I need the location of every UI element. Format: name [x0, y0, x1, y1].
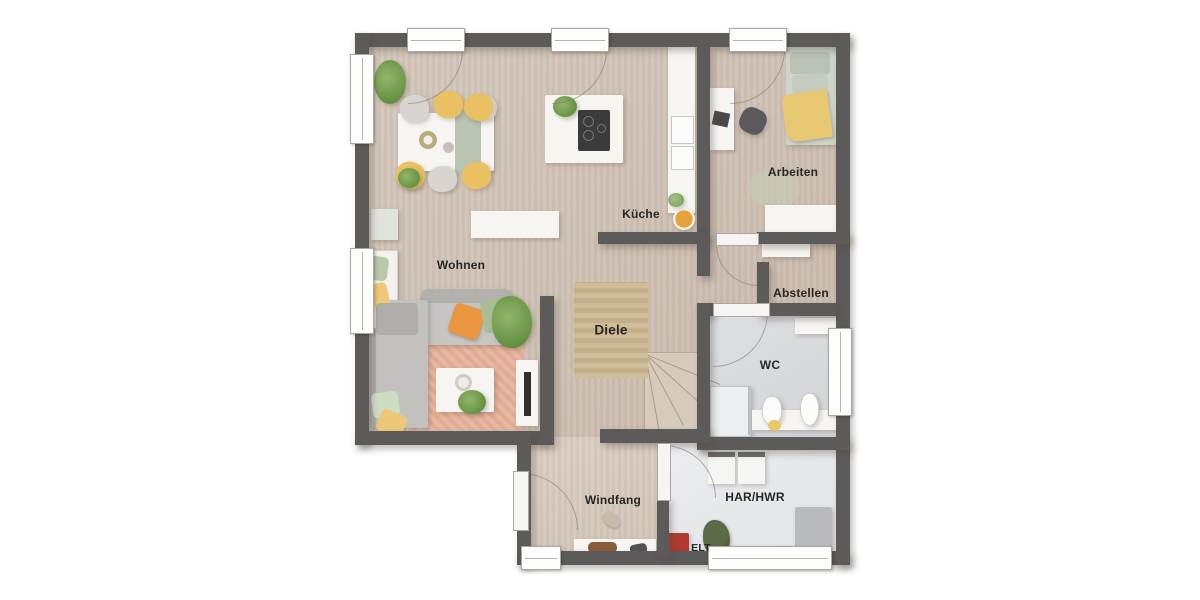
coffee-table-plant — [458, 390, 486, 414]
chaise-cushion — [376, 303, 418, 335]
tv — [524, 372, 531, 416]
toilet — [800, 393, 819, 426]
sofa-plant — [492, 296, 532, 348]
storage-door-leaf — [716, 233, 759, 246]
room-label-abstellen: Abstellen — [773, 286, 829, 300]
window-left-living — [350, 248, 374, 334]
window-top-office — [729, 28, 787, 52]
wall-wc-bottom — [697, 437, 850, 450]
wall-wc-left — [697, 303, 710, 450]
room-label-wohnen: Wohnen — [437, 258, 485, 272]
wall-wc-top-right — [768, 303, 836, 316]
table-wreath-decor — [419, 131, 437, 149]
wall-kitchen-office — [697, 47, 710, 232]
office-cabinet — [765, 205, 836, 232]
wall-stub-corridor — [697, 232, 710, 276]
built-in-oven — [671, 116, 694, 144]
window-top-living — [407, 28, 465, 52]
built-in-oven — [671, 146, 694, 170]
wc-door-leaf — [713, 303, 770, 317]
window-right-wc — [828, 328, 852, 416]
room-label-windfang: Windfang — [585, 493, 641, 507]
window-left-dining — [350, 54, 374, 144]
coffee-table-plate — [455, 374, 472, 391]
laptop — [712, 110, 731, 127]
cooktop-burner — [583, 116, 594, 127]
corner-plant — [374, 60, 406, 104]
room-label-har-hwr: HAR/HWR — [725, 490, 784, 504]
kitchen-greenery — [668, 193, 684, 207]
cooktop-burner — [597, 124, 606, 133]
chair-plant — [398, 168, 420, 188]
wall-kitchen-bottom — [598, 232, 710, 244]
window-bottom-windfang — [521, 546, 561, 570]
utility-unit — [795, 507, 832, 548]
room-label-kueche: Küche — [622, 207, 660, 221]
sideboard-center — [471, 211, 559, 238]
wall-windfang-har — [657, 497, 669, 557]
room-label-wc: WC — [760, 358, 780, 372]
shower-glass — [748, 386, 750, 435]
table-vase-decor — [443, 142, 454, 153]
room-label-arbeiten: Arbeiten — [768, 165, 818, 179]
sideboard-left-wall — [371, 209, 398, 240]
wall-outer-right — [836, 33, 850, 565]
cooktop-burner — [583, 130, 594, 141]
wall-living-hall — [540, 296, 554, 445]
window-bottom-har — [708, 546, 832, 570]
daybed-blanket-yellow — [781, 89, 833, 143]
room-label-diele: Diele — [594, 323, 627, 338]
wc-sponge — [768, 420, 781, 431]
daybed-pillow — [790, 52, 830, 74]
fruit-plate — [673, 208, 695, 230]
dryer — [738, 452, 765, 484]
wall-hall-bottom — [600, 429, 710, 443]
wall-office-bottom — [757, 232, 850, 244]
shower — [710, 386, 751, 437]
storage-shelf — [762, 244, 810, 257]
room-label-elt: ELT — [691, 542, 711, 554]
har-door-leaf — [657, 443, 671, 501]
window-top-kitchen — [551, 28, 609, 52]
entrance-door-leaf — [513, 471, 529, 531]
